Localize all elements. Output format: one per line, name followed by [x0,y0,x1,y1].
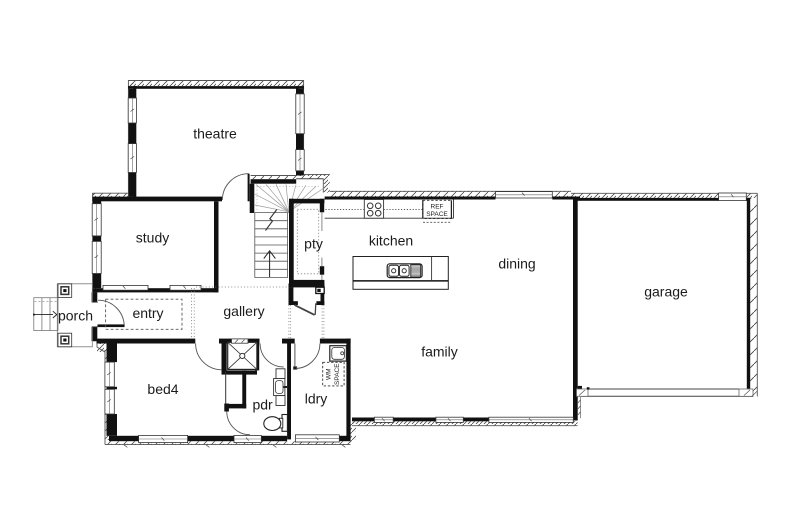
svg-text:SPACE: SPACE [426,211,448,218]
svg-text:bed4: bed4 [147,381,178,397]
svg-text:study: study [136,230,169,246]
svg-text:garage: garage [644,283,688,299]
svg-text:WM: WM [326,368,333,380]
svg-text:entry: entry [132,305,163,321]
svg-text:dining: dining [498,256,535,272]
svg-text:REF: REF [431,204,444,211]
svg-text:porch: porch [58,308,93,324]
svg-text:SPACE: SPACE [334,363,341,385]
svg-text:pdr: pdr [252,397,273,413]
svg-text:pty: pty [304,236,323,252]
svg-text:theatre: theatre [193,126,237,142]
svg-text:family: family [421,344,458,360]
svg-text:kitchen: kitchen [369,233,413,249]
svg-text:ldry: ldry [305,391,328,407]
svg-text:gallery: gallery [223,303,264,319]
